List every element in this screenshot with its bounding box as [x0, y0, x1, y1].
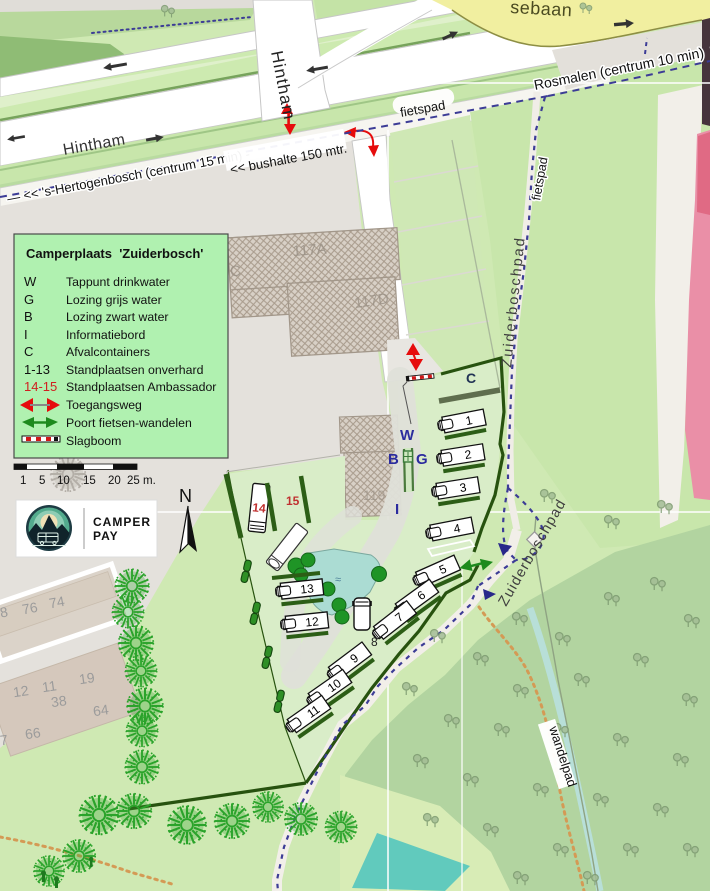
svg-text:15: 15 [286, 494, 300, 508]
svg-text:12: 12 [12, 682, 30, 700]
svg-text:64: 64 [92, 701, 110, 719]
svg-text:C: C [466, 370, 476, 386]
svg-text:Lozing zwart water: Lozing zwart water [66, 310, 169, 324]
svg-text:Poort fietsen-wandelen: Poort fietsen-wandelen [66, 416, 192, 430]
svg-text:Standplaatsen Ambassador: Standplaatsen Ambassador [66, 380, 216, 394]
svg-text:Afvalcontainers: Afvalcontainers [66, 345, 150, 359]
svg-text:15: 15 [83, 475, 96, 487]
svg-text:38: 38 [50, 692, 68, 710]
svg-text:CAMPER: CAMPER [93, 515, 151, 529]
svg-text:sebaan: sebaan [510, 0, 573, 20]
svg-text:8: 8 [371, 635, 378, 649]
svg-text:19: 19 [78, 669, 96, 687]
svg-text:Tappunt drinkwater: Tappunt drinkwater [66, 275, 170, 289]
svg-text:12: 12 [305, 614, 320, 629]
svg-text:117A: 117A [292, 241, 327, 260]
svg-text:G: G [24, 292, 34, 307]
svg-text:Lozing grijs water: Lozing grijs water [66, 293, 162, 307]
svg-text:66: 66 [24, 724, 42, 742]
svg-text:≈: ≈ [335, 574, 341, 586]
svg-text:B: B [388, 451, 399, 468]
svg-text:1-13: 1-13 [24, 362, 50, 377]
svg-text:PAY: PAY [93, 529, 119, 543]
svg-text:11: 11 [41, 677, 58, 695]
svg-text:1: 1 [20, 475, 26, 487]
svg-text:Slagboom: Slagboom [66, 434, 121, 448]
svg-text:B: B [24, 309, 33, 324]
svg-text:I: I [395, 501, 399, 518]
svg-text:Informatiebord: Informatiebord [66, 328, 145, 342]
svg-text:Toegangsweg: Toegangsweg [66, 398, 142, 412]
svg-text:I: I [24, 327, 28, 342]
svg-text:W: W [24, 274, 37, 289]
svg-text:14: 14 [252, 500, 267, 515]
svg-text:G: G [416, 451, 428, 468]
svg-text:14-15: 14-15 [24, 379, 57, 394]
svg-text:13: 13 [300, 581, 315, 596]
svg-text:74: 74 [48, 593, 66, 611]
svg-text:5: 5 [39, 475, 45, 487]
svg-text:Standplaatsen onverhard: Standplaatsen onverhard [66, 363, 204, 377]
svg-text:25 m.: 25 m. [127, 475, 156, 487]
svg-text:W: W [400, 427, 415, 444]
svg-text:76: 76 [21, 599, 39, 617]
svg-text:Camperplaats 'Zuiderbosch': Camperplaats 'Zuiderbosch' [26, 246, 203, 261]
svg-text:119: 119 [363, 487, 386, 503]
svg-text:N: N [179, 486, 192, 506]
svg-text:C: C [24, 344, 33, 359]
svg-text:20: 20 [108, 475, 121, 487]
svg-text:10: 10 [57, 475, 70, 487]
